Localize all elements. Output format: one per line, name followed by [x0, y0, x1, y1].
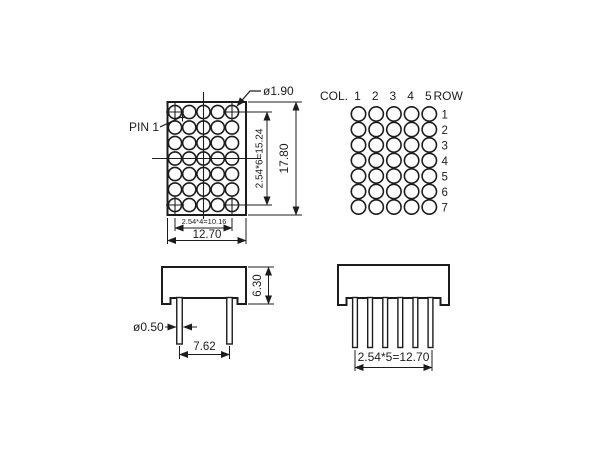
dot-diameter-label: ø1.90: [263, 84, 294, 98]
pin-map-dot: [387, 122, 401, 136]
led-dot: [183, 136, 196, 149]
pin-map-dot-grid: [351, 107, 436, 214]
pin-map-dot: [404, 169, 418, 183]
pin1-label: PIN 1: [129, 120, 159, 134]
pin-map-dot: [369, 138, 383, 152]
lead-pin: [177, 298, 183, 345]
row-number: 3: [442, 141, 448, 153]
column-number: 5: [425, 89, 432, 103]
row-number: 7: [442, 203, 448, 215]
column-number: 4: [407, 89, 414, 103]
pin-map-dot: [422, 153, 436, 167]
pin-map-dot: [422, 138, 436, 152]
side-view-pins: [177, 298, 233, 345]
led-dot: [183, 167, 196, 180]
front-view: PIN 1 ø1.90 2.54*6=15.24 17.80 2.54*4=10…: [129, 84, 302, 244]
pin-map-dot: [351, 169, 365, 183]
pin-map-dot: [351, 184, 365, 198]
pin-map-dot: [369, 153, 383, 167]
column-number: 1: [354, 89, 361, 103]
led-dot: [211, 198, 224, 211]
side-view-body: [162, 267, 246, 304]
led-dot: [168, 167, 181, 180]
led-dot: [211, 136, 224, 149]
dim-row-span-label: 2.54*6=15.24: [255, 128, 266, 188]
pin-map-dot: [387, 169, 401, 183]
pin-map-dot: [369, 200, 383, 214]
pin-map-dot: [351, 122, 365, 136]
pin-map-dot: [387, 153, 401, 167]
pin-map-dot: [351, 200, 365, 214]
pin-map-dot: [369, 184, 383, 198]
lead-pin: [353, 298, 358, 348]
row-number: 6: [442, 187, 448, 199]
led-dot: [183, 121, 196, 134]
pin-map-dot: [404, 200, 418, 214]
pin-map-dot: [369, 122, 383, 136]
led-dot: [183, 105, 196, 118]
led-dot: [168, 121, 181, 134]
led-dot: [183, 183, 196, 196]
lead-pin: [428, 298, 433, 348]
led-dot: [211, 121, 224, 134]
lead-pin: [398, 298, 403, 348]
led-dot: [168, 136, 181, 149]
pin-map-dot: [387, 200, 401, 214]
end-view-pins: [353, 298, 433, 348]
led-dot: [168, 183, 181, 196]
pin-map-dot: [387, 184, 401, 198]
pin-map-dot: [387, 138, 401, 152]
col-header-label: COL.: [320, 89, 348, 103]
pin-map-dot: [351, 138, 365, 152]
pin-map: COL. ROW 12345 1234567: [320, 89, 464, 215]
led-dot: [225, 121, 238, 134]
row-header-label: ROW: [434, 89, 464, 103]
lead-pin: [413, 298, 418, 348]
row-number: 5: [442, 172, 448, 184]
pin-diameter-label: ø0.50: [133, 320, 164, 334]
pin-map-dot: [351, 107, 365, 121]
dim-overall-width-label: 12.70: [193, 229, 222, 241]
row-number: 1: [442, 110, 448, 122]
dim-pin-gap-label: 7.62: [193, 341, 215, 353]
led-dot: [211, 167, 224, 180]
row-number: 4: [442, 156, 449, 168]
row-number-labels: 1234567: [442, 110, 449, 215]
lead-pin: [368, 298, 373, 348]
dot-diameter-leader-line: [237, 91, 261, 106]
column-number: 3: [390, 89, 397, 103]
pin-map-dot: [404, 107, 418, 121]
dim-body-depth-label: 6.30: [252, 274, 264, 296]
drawing-svg: PIN 1 ø1.90 2.54*6=15.24 17.80 2.54*4=10…: [0, 0, 600, 450]
pin-map-dot: [369, 169, 383, 183]
pin-map-dot: [404, 184, 418, 198]
column-number-labels: 12345: [354, 89, 432, 103]
led-dot: [211, 183, 224, 196]
pin-map-dot: [404, 122, 418, 136]
lead-pin: [227, 298, 233, 345]
pin-map-dot: [422, 107, 436, 121]
side-view: 6.30 ø0.50 7.62: [133, 267, 274, 359]
pin-map-dot: [404, 153, 418, 167]
pin-map-dot: [422, 200, 436, 214]
end-view: 2.54*5=12.70: [338, 265, 449, 371]
dim-col-span-label: 2.54*4=10.16: [182, 217, 227, 226]
column-number: 2: [372, 89, 379, 103]
pin-map-dot: [422, 169, 436, 183]
pin-map-dot: [404, 138, 418, 152]
lead-pin: [383, 298, 388, 348]
pin-map-dot: [351, 153, 365, 167]
pin1-leader-line: [160, 118, 180, 128]
pin-map-dot: [422, 122, 436, 136]
led-dot: [225, 183, 238, 196]
pin-map-dot: [369, 107, 383, 121]
led-dot: [183, 198, 196, 211]
pin-map-dot: [387, 107, 401, 121]
led-dot: [225, 136, 238, 149]
led-dot: [225, 167, 238, 180]
dim-pin-span-label: 2.54*5=12.70: [358, 350, 430, 364]
pin-map-dot: [422, 184, 436, 198]
row-number: 2: [442, 125, 448, 137]
dim-overall-height-label: 17.80: [277, 143, 291, 173]
led-dot: [211, 105, 224, 118]
technical-drawing-canvas: PIN 1 ø1.90 2.54*6=15.24 17.80 2.54*4=10…: [0, 0, 600, 450]
